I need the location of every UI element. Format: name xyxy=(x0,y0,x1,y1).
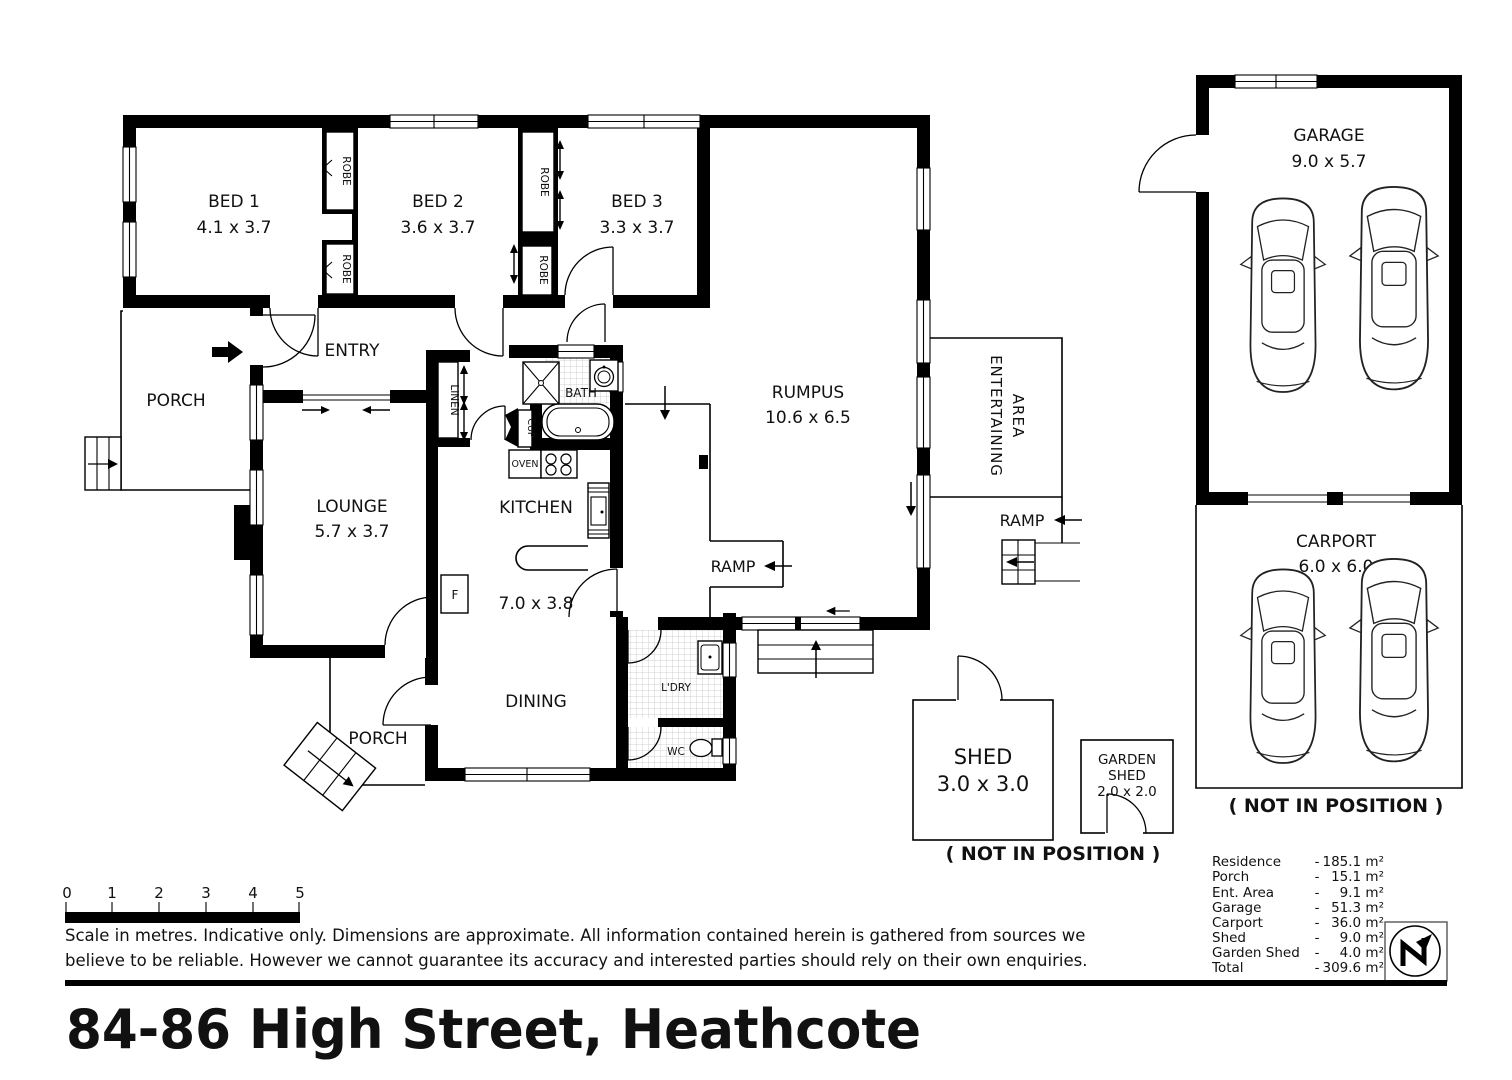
window xyxy=(558,345,594,358)
area-separator: - xyxy=(1315,885,1320,901)
window xyxy=(723,643,736,677)
bed3-label: BED 3 xyxy=(611,192,663,212)
window xyxy=(123,147,136,202)
door xyxy=(1139,135,1196,192)
table-row: Total-309.6 m² xyxy=(1211,960,1384,976)
lounge-dims: 5.7 x 3.7 xyxy=(315,522,390,542)
entry-arrow-icon xyxy=(212,341,243,363)
ramp-right-label: RAMP xyxy=(1000,511,1045,530)
car-icon xyxy=(1350,559,1438,761)
bed3-dims: 3.3 x 3.7 xyxy=(600,218,675,238)
area-label: Porch xyxy=(1212,869,1249,885)
divider-line xyxy=(65,980,1447,986)
wc-label: WC xyxy=(667,746,685,758)
door xyxy=(385,597,433,645)
area-value: 15.1 m² xyxy=(1331,869,1384,885)
table-row: Garage-51.3 m² xyxy=(1212,900,1384,916)
window xyxy=(250,470,263,525)
kitchen-bench xyxy=(516,546,588,570)
page-title: 84-86 High Street, Heathcote xyxy=(66,998,921,1061)
table-row: Carport-36.0 m² xyxy=(1212,915,1384,931)
area-separator: - xyxy=(1315,854,1320,870)
north-arrow-icon xyxy=(1385,922,1447,981)
shed: SHED 3.0 x 3.0 xyxy=(913,656,1053,840)
window xyxy=(1235,75,1317,88)
main-house: BED 1 4.1 x 3.7 BED 2 3.6 x 3.7 BED 3 3.… xyxy=(85,115,1082,811)
kitchen-dims: 7.0 x 3.8 xyxy=(499,594,574,614)
area-label: Shed xyxy=(1212,930,1246,946)
cooktop xyxy=(541,450,577,478)
shed-label: SHED xyxy=(954,745,1013,769)
floorplan-canvas: BED 1 4.1 x 3.7 BED 2 3.6 x 3.7 BED 3 3.… xyxy=(0,0,1512,1080)
carport-dims: 6.0 x 6.0 xyxy=(1299,557,1374,577)
area-separator: - xyxy=(1315,869,1320,885)
area-table: Residence-185.1 m² Porch-15.1 m² Ent. Ar… xyxy=(1211,854,1384,976)
garage-label: GARAGE xyxy=(1293,126,1364,146)
area-separator: - xyxy=(1315,960,1320,976)
shed-not-in-position: ( NOT IN POSITION ) xyxy=(946,843,1161,865)
area-separator: - xyxy=(1315,930,1320,946)
window xyxy=(123,222,136,277)
toilet xyxy=(690,739,722,757)
robe-label-2: ROBE xyxy=(340,254,352,283)
shed-dims: 3.0 x 3.0 xyxy=(937,772,1030,796)
area-label: Garage xyxy=(1212,900,1261,916)
scale-tick-0: 0 xyxy=(62,884,72,902)
garage: GARAGE 9.0 x 5.7 xyxy=(1139,75,1462,505)
door xyxy=(383,677,431,725)
window xyxy=(917,168,930,230)
rear-steps xyxy=(758,630,873,678)
kitchen-fixtures xyxy=(441,450,609,613)
scale-tick-4: 4 xyxy=(248,884,258,902)
kitchen-sink xyxy=(588,483,609,538)
area-value: 309.6 m² xyxy=(1322,960,1384,976)
floorplan-page: BED 1 4.1 x 3.7 BED 2 3.6 x 3.7 BED 3 3.… xyxy=(0,0,1512,1080)
disclaimer: Scale in metres. Indicative only. Dimens… xyxy=(65,926,1087,970)
door xyxy=(263,315,315,367)
window xyxy=(465,768,590,781)
rumpus-label: RUMPUS xyxy=(772,383,844,403)
table-row: Ent. Area-9.1 m² xyxy=(1212,885,1384,901)
lounge-label: LOUNGE xyxy=(316,497,387,517)
fridge-label: F xyxy=(452,588,459,602)
door xyxy=(567,304,605,342)
area-label: Garden Shed xyxy=(1212,945,1300,961)
area-label: Total xyxy=(1211,960,1244,976)
scale-tick-5: 5 xyxy=(295,884,305,902)
area-separator: - xyxy=(1315,945,1320,961)
window xyxy=(588,115,700,128)
laundry-tub xyxy=(698,641,722,674)
window xyxy=(250,385,263,440)
area-value: 4.0 m² xyxy=(1340,945,1384,961)
car-icon xyxy=(1241,569,1325,763)
area-separator: - xyxy=(1315,900,1320,916)
area-label: Carport xyxy=(1212,915,1263,931)
area-value: 185.1 m² xyxy=(1322,854,1384,870)
porch-front-label: PORCH xyxy=(146,391,205,411)
porch-rear-label: PORCH xyxy=(348,729,407,749)
window xyxy=(390,115,478,128)
area-label: Ent. Area xyxy=(1212,885,1274,901)
carport-not-in-position: ( NOT IN POSITION ) xyxy=(1229,795,1444,817)
area-label: Residence xyxy=(1212,854,1281,870)
table-row: Shed-9.0 m² xyxy=(1212,930,1384,946)
area-value: 9.1 m² xyxy=(1340,885,1384,901)
disclaimer-line-2: believe to be reliable. However we canno… xyxy=(65,951,1087,970)
ramp-center-label: RAMP xyxy=(711,557,756,576)
bath-label: BATH xyxy=(565,386,597,400)
window xyxy=(917,377,930,448)
door xyxy=(569,569,617,617)
entertaining-label-2: AREA xyxy=(1009,394,1027,438)
laundry-label: L'DRY xyxy=(661,682,691,694)
oven-label: OVEN xyxy=(512,459,539,470)
window xyxy=(723,738,736,764)
table-row: Residence-185.1 m² xyxy=(1212,854,1384,870)
scale-tick-1: 1 xyxy=(107,884,117,902)
garden-shed-label-2: SHED xyxy=(1108,768,1146,784)
door xyxy=(565,247,613,295)
window xyxy=(917,300,930,363)
car-icon xyxy=(1350,187,1438,389)
robe-label-1: ROBE xyxy=(340,156,352,185)
garden-shed-dims: 2.0 x 2.0 xyxy=(1097,784,1157,800)
shower xyxy=(523,362,559,404)
window xyxy=(742,617,860,630)
table-row: Garden Shed-4.0 m² xyxy=(1212,945,1384,961)
garden-shed: GARDEN SHED 2.0 x 2.0 xyxy=(1081,740,1173,833)
garden-shed-label-1: GARDEN xyxy=(1098,752,1156,768)
area-value: 51.3 m² xyxy=(1331,900,1384,916)
bed2-label: BED 2 xyxy=(412,192,464,212)
area-value: 36.0 m² xyxy=(1331,915,1384,931)
car-icon xyxy=(1241,198,1325,392)
entertaining-label-1: ENTERTAINING xyxy=(987,355,1005,477)
bed2-dims: 3.6 x 3.7 xyxy=(401,218,476,238)
ramp-right-steps xyxy=(1002,540,1080,584)
entry-label: ENTRY xyxy=(325,341,381,361)
carport: CARPORT 6.0 x 6.0 ( NOT IN POSITION ) xyxy=(1196,505,1462,817)
scale-tick-2: 2 xyxy=(154,884,164,902)
bed1-dims: 4.1 x 3.7 xyxy=(197,218,272,238)
area-separator: - xyxy=(1315,915,1320,931)
bed1-label: BED 1 xyxy=(208,192,260,212)
scale-tick-3: 3 xyxy=(201,884,211,902)
bathtub xyxy=(542,404,614,440)
dining-label: DINING xyxy=(505,692,567,712)
rumpus-dims: 10.6 x 6.5 xyxy=(765,408,851,428)
area-value: 9.0 m² xyxy=(1340,930,1384,946)
robe-label-3: ROBE xyxy=(538,167,550,196)
table-row: Porch-15.1 m² xyxy=(1212,869,1384,885)
garage-dims: 9.0 x 5.7 xyxy=(1292,152,1367,172)
disclaimer-line-1: Scale in metres. Indicative only. Dimens… xyxy=(65,926,1085,945)
steps xyxy=(85,437,121,490)
kitchen-label: KITCHEN xyxy=(499,498,573,518)
cup-label: CUP xyxy=(525,418,536,438)
door xyxy=(455,308,503,356)
window xyxy=(917,475,930,568)
robe-label-4: ROBE xyxy=(537,255,549,284)
scale-bar: 0 1 2 3 4 5 xyxy=(62,884,305,923)
linen-label: LINEN xyxy=(448,384,460,415)
carport-label: CARPORT xyxy=(1296,532,1377,552)
window xyxy=(250,575,263,635)
door xyxy=(471,406,505,440)
